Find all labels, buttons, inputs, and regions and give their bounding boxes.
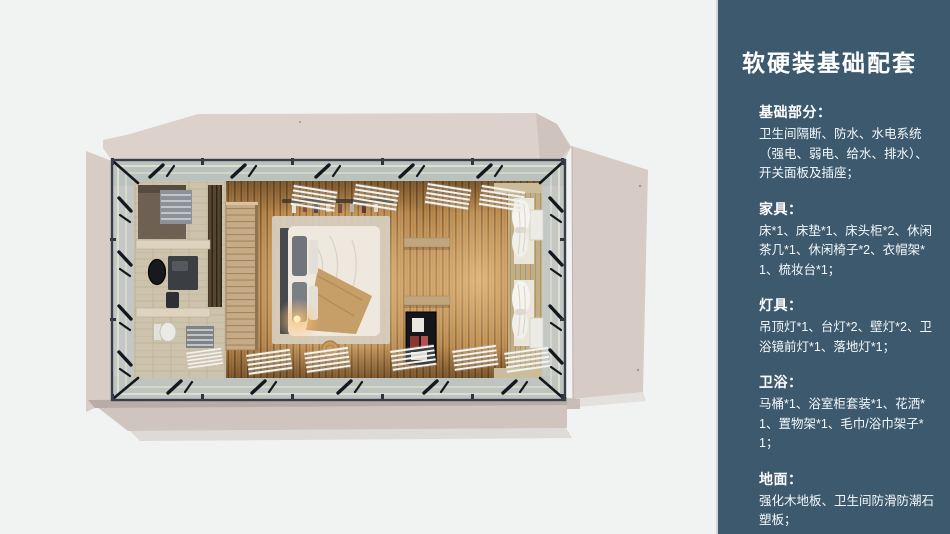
flap-right xyxy=(572,146,648,399)
floorplan-render xyxy=(0,0,716,534)
nightstand-2 xyxy=(530,318,543,348)
section-basics-heading: 基础部分： xyxy=(759,102,936,122)
vanity-sink xyxy=(172,261,188,271)
floorplan-svg xyxy=(0,0,716,534)
flap-left xyxy=(86,151,112,412)
section-bathroom: 卫浴： 马桶*1、浴室柜套装*1、花洒*1、置物架*1、毛巾/浴巾架子*1； xyxy=(759,372,936,454)
section-furniture: 家具： 床*1、床垫*1、床头柜*2、休闲茶几*1、休闲椅子*2、衣帽架*1、梳… xyxy=(759,199,936,281)
round-mirror xyxy=(149,260,166,285)
nightstand-1 xyxy=(530,210,543,240)
section-furniture-heading: 家具： xyxy=(759,199,936,219)
section-lighting: 灯具： 吊顶灯*1、台灯*2、壁灯*2、卫浴镜前灯*1、落地灯*1； xyxy=(759,295,936,357)
flap-bottom-step xyxy=(567,398,580,409)
section-lighting-body: 吊顶灯*1、台灯*2、壁灯*2、卫浴镜前灯*1、落地灯*1； xyxy=(759,318,936,357)
toilet xyxy=(160,323,176,342)
section-lighting-heading: 灯具： xyxy=(759,295,936,315)
panel-title: 软硬装基础配套 xyxy=(742,44,936,78)
section-flooring-heading: 地面： xyxy=(759,469,936,489)
section-basics-body: 卫生间隔断、防水、水电系统（强电、弱电、给水、排水）、开关面板及插座； xyxy=(759,125,936,184)
section-furniture-body: 床*1、床垫*1、床头柜*2、休闲茶几*1、休闲椅子*2、衣帽架*1、梳妆台*1… xyxy=(759,222,936,281)
bed-area xyxy=(272,216,390,357)
section-bathroom-heading: 卫浴： xyxy=(759,372,936,392)
section-basics: 基础部分： 卫生间隔断、防水、水电系统（强电、弱电、给水、排水）、开关面板及插座… xyxy=(759,102,936,184)
info-panel: 软硬装基础配套 基础部分： 卫生间隔断、防水、水电系统（强电、弱电、给水、排水）… xyxy=(716,0,950,534)
vanity-stool xyxy=(166,292,179,308)
section-bathroom-body: 马桶*1、浴室柜套装*1、花洒*1、置物架*1、毛巾/浴巾架子*1； xyxy=(759,395,936,454)
shelf-lower xyxy=(404,296,450,305)
slide: 软硬装基础配套 基础部分： 卫生间隔断、防水、水电系统（强电、弱电、给水、排水）… xyxy=(0,0,950,534)
shelf-upper xyxy=(404,238,450,247)
section-flooring: 地面： 强化木地板、卫生间防滑防潮石塑板； xyxy=(759,469,936,531)
wardrobe xyxy=(226,202,258,350)
pillow-dark-1 xyxy=(292,236,307,276)
section-flooring-body: 强化木地板、卫生间防滑防潮石塑板； xyxy=(759,492,936,531)
partition-shelf-upper xyxy=(136,240,210,249)
pillow-white-1 xyxy=(309,240,318,274)
partition-shelf-lower xyxy=(136,308,210,317)
floor-lamp xyxy=(294,316,301,323)
